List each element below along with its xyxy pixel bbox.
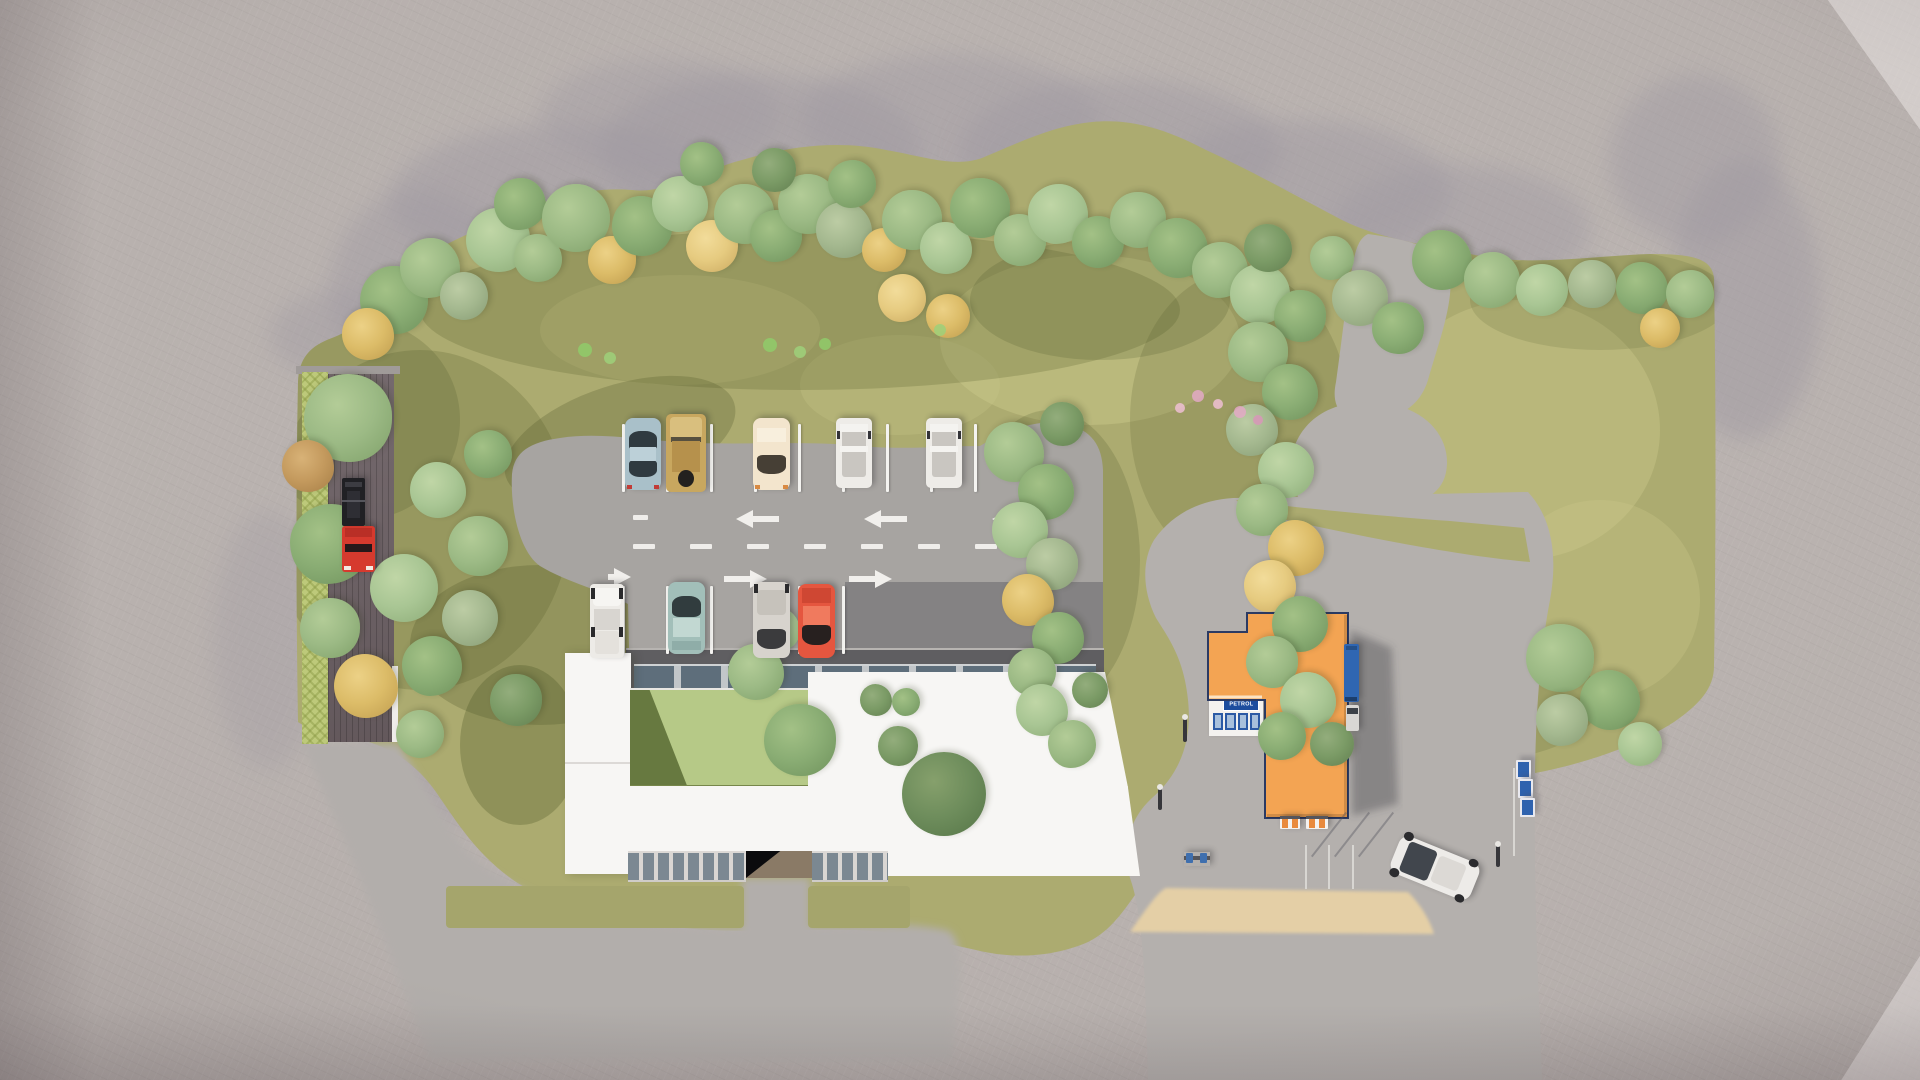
parking-stall-post bbox=[710, 424, 713, 492]
lamp-head bbox=[1182, 714, 1188, 720]
car-white-pickup-b-part bbox=[927, 431, 930, 439]
truck-red-service-part bbox=[345, 544, 373, 551]
tree-g1 bbox=[514, 234, 562, 282]
tree-sage bbox=[442, 590, 498, 646]
car-bluegray-sedan-part bbox=[654, 485, 659, 489]
service-building-green-roof bbox=[302, 372, 328, 744]
site-plan-canvas: PETROL bbox=[0, 0, 1920, 1080]
tree-g4 bbox=[752, 148, 796, 192]
tree-g2 bbox=[612, 196, 672, 256]
tree-g1 bbox=[1048, 720, 1096, 768]
lane-dash bbox=[918, 544, 940, 549]
fuel-pump-1-part bbox=[1292, 819, 1298, 827]
tree-cast-shadow bbox=[960, 80, 1280, 220]
grass-tone bbox=[960, 410, 1140, 710]
tree-cast-shadow bbox=[1610, 75, 1780, 245]
museum-green-roof bbox=[630, 688, 808, 790]
petrol-sign-label: PETROL bbox=[1229, 702, 1253, 707]
lamppost bbox=[1496, 845, 1500, 867]
green-roof-shadow bbox=[630, 690, 808, 790]
car-bluegray-sedan-part bbox=[630, 447, 656, 461]
tree-g4 bbox=[878, 726, 918, 766]
kiosk-window bbox=[1213, 713, 1223, 730]
car-teal-sedan-part bbox=[673, 618, 700, 637]
van-white-part bbox=[1399, 841, 1438, 882]
arrow-shaft bbox=[1009, 516, 1035, 522]
car-tan-jeep-part bbox=[670, 417, 702, 439]
car-red-sedan-part bbox=[802, 625, 830, 644]
arrow-shaft bbox=[724, 576, 750, 582]
truck-blue-cab bbox=[1346, 705, 1359, 731]
service-strip-dark bbox=[626, 648, 1104, 688]
parking-stall-post bbox=[974, 424, 977, 492]
fuel-pump-2-part bbox=[1309, 819, 1316, 827]
lane-dash bbox=[804, 544, 826, 549]
tree-cast-shadow bbox=[1670, 160, 1820, 440]
fuel-pump-1 bbox=[1280, 816, 1300, 829]
tree-g1 bbox=[714, 184, 774, 244]
tree-cast-shadow bbox=[390, 125, 730, 275]
service-building bbox=[296, 366, 400, 744]
tree-g3 bbox=[992, 502, 1048, 558]
service-strip-line-top bbox=[626, 648, 1104, 650]
tree-cast-shadow bbox=[1330, 165, 1590, 295]
museum-entrance bbox=[746, 851, 812, 878]
tree-cast-shadow bbox=[600, 75, 920, 225]
tree-g2 bbox=[1372, 302, 1424, 354]
car-red-sedan-part bbox=[802, 588, 832, 603]
lane-dash bbox=[633, 515, 648, 520]
pole-shadow bbox=[1311, 812, 1347, 857]
shrub-dot bbox=[1213, 399, 1223, 409]
tree-sage bbox=[1226, 404, 1278, 456]
grass-tone bbox=[420, 230, 1180, 390]
parking-stall-post bbox=[798, 424, 801, 492]
tree-g2 bbox=[950, 178, 1010, 238]
parking-stall-post bbox=[754, 586, 757, 654]
fuel-pump-2 bbox=[1306, 816, 1328, 829]
kiosk-window bbox=[1250, 713, 1260, 730]
shrub-dot bbox=[794, 346, 806, 358]
car-white-pickup-b-part bbox=[930, 446, 957, 452]
parking-stall-post bbox=[666, 586, 669, 654]
tree-g1 bbox=[1246, 636, 1298, 688]
car-white-pickup-a-part bbox=[840, 424, 869, 432]
tree-cast-shadow bbox=[213, 510, 323, 770]
truck-red-service-part bbox=[345, 528, 373, 537]
lane-dash bbox=[690, 544, 712, 549]
tree-g4 bbox=[1072, 672, 1108, 708]
tree-g2 bbox=[1274, 290, 1326, 342]
parking-stall-post bbox=[930, 424, 933, 492]
car-teal-sedan-part bbox=[672, 596, 702, 616]
lane-dash bbox=[861, 544, 883, 549]
museum-east-roof bbox=[808, 672, 1138, 788]
parking-stall-post bbox=[622, 586, 625, 654]
tree-g2 bbox=[402, 636, 462, 696]
tree-sage bbox=[1332, 270, 1388, 326]
kiosk-window bbox=[1238, 713, 1248, 730]
board-corner-cut-bottomright bbox=[0, 0, 1920, 1080]
car-white-pickup-a bbox=[836, 418, 872, 488]
museum-lawn-strip-west bbox=[446, 886, 744, 928]
vehicle-dark-service-part bbox=[342, 500, 365, 502]
shrub-dot bbox=[819, 338, 831, 350]
arrow-shaft bbox=[849, 576, 875, 582]
tree-g3 bbox=[1618, 722, 1662, 766]
lamppost bbox=[1158, 788, 1162, 810]
tree-g3 bbox=[920, 222, 972, 274]
museum-tower-wing bbox=[565, 653, 631, 874]
tree-g3 bbox=[1516, 264, 1568, 316]
petrol-plaza bbox=[1127, 492, 1554, 1080]
tree-g4 bbox=[860, 684, 892, 716]
car-bluegray-sedan-part bbox=[629, 460, 656, 477]
vehicle-dark-service-part bbox=[345, 482, 361, 487]
shrub-dot bbox=[578, 343, 592, 357]
car-cream-sedan-part bbox=[757, 428, 785, 442]
car-bluegray-sedan bbox=[625, 418, 661, 490]
tree-g1 bbox=[304, 374, 392, 462]
grass-tone bbox=[970, 240, 1230, 360]
paper-texture bbox=[0, 0, 1920, 1080]
parking-stall-post bbox=[886, 424, 889, 492]
tree-g4 bbox=[1310, 722, 1354, 766]
vehicle-dark-service-part bbox=[347, 491, 361, 517]
tree-g1 bbox=[1310, 236, 1354, 280]
tree-y1 bbox=[334, 654, 398, 718]
arrow-head-icon bbox=[875, 570, 892, 588]
tree-y1 bbox=[1640, 308, 1680, 348]
tree-g1 bbox=[1464, 252, 1520, 308]
canopy-shadow bbox=[1350, 630, 1398, 816]
tree-y2 bbox=[1244, 560, 1296, 612]
tree-g2 bbox=[1258, 712, 1306, 760]
car-white-truck-part bbox=[591, 627, 594, 637]
tree-y2 bbox=[878, 274, 926, 322]
car-teal-sedan-part bbox=[672, 641, 700, 650]
truck-blue-trailer-part bbox=[1346, 646, 1357, 650]
cast-shadows-layer bbox=[0, 0, 1920, 1080]
tree-g1 bbox=[400, 238, 460, 298]
museum-south-body bbox=[630, 786, 1140, 876]
tree-g2 bbox=[290, 504, 370, 584]
picnic-bench-part bbox=[1200, 853, 1207, 863]
car-white-truck-part bbox=[591, 588, 594, 598]
path-loop-blob bbox=[1290, 402, 1447, 507]
truck-red-service-part bbox=[344, 566, 351, 570]
truck-blue-trailer bbox=[1344, 644, 1359, 702]
grass-tone bbox=[270, 350, 570, 690]
tree-g1 bbox=[882, 190, 942, 250]
service-building-white-edge bbox=[392, 666, 398, 742]
car-white-pickup-b bbox=[926, 418, 962, 488]
tree-g3 bbox=[1258, 442, 1314, 498]
museum-glazing-west bbox=[628, 851, 746, 882]
car-gray-suv bbox=[753, 582, 790, 658]
service-building-dark-roof bbox=[328, 374, 394, 742]
blue-info-sign bbox=[1518, 779, 1533, 798]
road-markings-layer bbox=[0, 0, 1920, 1080]
board-corner-cut-topright bbox=[0, 0, 1920, 1080]
car-cream-sedan-part bbox=[757, 455, 787, 474]
site-grass bbox=[297, 121, 1716, 955]
parking-stall-post bbox=[622, 424, 625, 492]
car-bluegray-sedan-part bbox=[627, 485, 632, 489]
tree-g1 bbox=[396, 710, 444, 758]
vehicle-dark-service bbox=[342, 478, 365, 526]
tree-g3 bbox=[410, 462, 466, 518]
museum-glazing-east bbox=[812, 851, 888, 882]
tree-cast-shadow bbox=[270, 290, 420, 380]
picnic-bench-part bbox=[1184, 856, 1210, 860]
tree-y1 bbox=[1268, 520, 1324, 576]
tree-g2 bbox=[360, 266, 428, 334]
grass-shadows bbox=[260, 230, 1730, 825]
car-white-pickup-b-part bbox=[930, 424, 959, 432]
tree-g2 bbox=[828, 160, 876, 208]
tree-y1 bbox=[588, 236, 636, 284]
car-white-truck bbox=[590, 584, 624, 658]
car-gray-suv-part bbox=[757, 629, 787, 649]
truck-blue-cab-part bbox=[1347, 708, 1357, 714]
tree-g2 bbox=[1262, 364, 1318, 420]
car-tan-jeep-part bbox=[671, 437, 701, 442]
service-building-cap bbox=[296, 366, 400, 374]
car-teal-sedan bbox=[668, 582, 705, 654]
tree-g1 bbox=[1236, 484, 1288, 536]
grass-tone bbox=[1130, 270, 1350, 570]
flag-pole bbox=[1305, 845, 1307, 889]
tree-sage bbox=[1568, 260, 1616, 308]
car-white-pickup-a-part bbox=[868, 431, 871, 439]
tree-cast-shadow bbox=[800, 55, 1100, 185]
car-tan-jeep-part bbox=[678, 470, 694, 487]
truck-red-service-part bbox=[366, 566, 373, 570]
grass-tone bbox=[593, 434, 866, 576]
tree-g1 bbox=[300, 598, 360, 658]
car-gray-suv-part bbox=[754, 584, 758, 593]
tree-g1 bbox=[448, 516, 508, 576]
car-gray-suv-part bbox=[757, 590, 785, 616]
pole-shadow bbox=[1358, 812, 1394, 857]
truck-red-service bbox=[342, 526, 375, 572]
car-white-truck-part bbox=[619, 627, 622, 637]
tree-g2 bbox=[1032, 612, 1084, 664]
shrub-dot bbox=[1192, 390, 1204, 402]
entrance-shadow bbox=[746, 851, 812, 878]
tree-g2 bbox=[1580, 670, 1640, 730]
tree-sage bbox=[440, 272, 488, 320]
grass-tone bbox=[1500, 500, 1700, 700]
green-roof-edge bbox=[630, 785, 808, 789]
tree-g2 bbox=[1616, 262, 1668, 314]
parking-corner-shade bbox=[845, 582, 1103, 650]
grass-wedge bbox=[1236, 500, 1530, 562]
parking-asphalt bbox=[512, 422, 1103, 688]
tree-g3 bbox=[370, 554, 438, 622]
grass-tone bbox=[260, 320, 460, 520]
trees-layer bbox=[0, 0, 1920, 1080]
grass-tone bbox=[1380, 300, 1660, 560]
blue-info-sign bbox=[1516, 760, 1531, 779]
arrow-head-icon bbox=[992, 510, 1009, 528]
car-white-pickup-b-part bbox=[932, 428, 956, 477]
car-white-truck-part bbox=[594, 609, 620, 630]
tree-y1 bbox=[1002, 574, 1054, 626]
tree-g3 bbox=[466, 208, 530, 272]
skylight-band bbox=[634, 664, 1096, 690]
lane-arrow-right bbox=[849, 570, 892, 588]
tree-g2 bbox=[750, 210, 802, 262]
car-white-pickup-b-part bbox=[958, 431, 961, 439]
tree-cast-shadow bbox=[360, 705, 580, 825]
tree-g4 bbox=[1040, 402, 1084, 446]
car-red-sedan-part bbox=[803, 606, 830, 625]
canopy-svg bbox=[0, 0, 1920, 1080]
van-white-part bbox=[1388, 867, 1401, 879]
car-white-pickup-a-part bbox=[840, 446, 867, 452]
tree-g2 bbox=[892, 688, 920, 716]
lane-dash bbox=[975, 544, 997, 549]
grass-tone bbox=[1470, 250, 1730, 350]
tree-tan bbox=[282, 440, 334, 492]
tree-g2 bbox=[680, 142, 724, 186]
parking-stall-post bbox=[754, 424, 757, 492]
grass-highlights bbox=[540, 255, 1700, 700]
flag-pole bbox=[1352, 845, 1354, 889]
arrow-shaft bbox=[881, 516, 907, 522]
flag-pole bbox=[1328, 845, 1330, 889]
tree-g1 bbox=[1192, 242, 1248, 298]
tree-g2 bbox=[1148, 218, 1208, 278]
lane-arrow-right bbox=[724, 570, 767, 588]
car-white-pickup-a-part bbox=[837, 431, 840, 439]
parking-stall-post bbox=[798, 586, 801, 654]
parking-stall-post bbox=[842, 586, 845, 654]
tree-g4 bbox=[490, 674, 542, 726]
fuel-pump-1-part bbox=[1282, 819, 1288, 827]
car-cream-sedan bbox=[753, 418, 790, 490]
tree-g1 bbox=[1110, 192, 1166, 248]
tree-sage bbox=[816, 202, 872, 258]
tree-g3 bbox=[1280, 672, 1336, 728]
lane-dash bbox=[1032, 544, 1054, 549]
tree-g2 bbox=[1072, 216, 1124, 268]
tree-y1 bbox=[926, 294, 970, 338]
grass-tone bbox=[800, 650, 1060, 790]
car-cream-sedan-part bbox=[783, 485, 788, 489]
tree-g1 bbox=[778, 174, 838, 234]
tree-g2 bbox=[1018, 464, 1074, 520]
arrow-head-icon bbox=[864, 510, 881, 528]
grass-tone bbox=[800, 335, 1000, 435]
fuel-pump-2-part bbox=[1319, 819, 1326, 827]
tree-pine bbox=[902, 752, 986, 836]
shrub-dot bbox=[763, 338, 777, 352]
tree-cast-shadow bbox=[1150, 120, 1450, 260]
tree-g2 bbox=[494, 178, 546, 230]
flag-pole bbox=[1513, 768, 1515, 856]
tree-g1 bbox=[1526, 624, 1594, 692]
lamppost bbox=[1183, 718, 1187, 742]
car-tan-jeep bbox=[666, 414, 706, 492]
car-white-pickup-a-part bbox=[842, 428, 866, 477]
van-white-part bbox=[1453, 893, 1465, 904]
car-white-truck-part bbox=[595, 631, 619, 653]
fuel-pump-1-part bbox=[1280, 816, 1300, 819]
tree-y2 bbox=[686, 220, 738, 272]
lane-arrow-left bbox=[736, 510, 779, 528]
tree-g1 bbox=[1008, 648, 1056, 696]
tree-g3 bbox=[1230, 264, 1290, 324]
tree-g3 bbox=[1028, 184, 1088, 244]
parking-stall-post bbox=[666, 424, 669, 492]
canopy-inner-shade bbox=[1267, 615, 1346, 816]
grass-tone bbox=[489, 351, 751, 530]
car-white-truck-part bbox=[593, 588, 620, 606]
grass-tone bbox=[1360, 640, 1600, 760]
car-tan-jeep-part bbox=[672, 441, 701, 472]
tree-g2 bbox=[1272, 596, 1328, 652]
tree-y1 bbox=[862, 228, 906, 272]
tree-sage bbox=[1536, 694, 1588, 746]
shrub-dot bbox=[1253, 415, 1263, 425]
tree-sage bbox=[1026, 538, 1078, 590]
shrub-dot bbox=[1175, 403, 1185, 413]
vignette bbox=[0, 0, 1920, 1080]
picnic-bench-part bbox=[1186, 853, 1193, 863]
buildings-layer: PETROL bbox=[0, 0, 1920, 1080]
petrol-sign: PETROL bbox=[1223, 698, 1259, 711]
shrub-dot bbox=[1234, 406, 1246, 418]
grass-tone bbox=[460, 665, 580, 825]
parking-stall-post bbox=[710, 586, 713, 654]
lane-arrow-right bbox=[608, 568, 631, 586]
lamp-head bbox=[1157, 784, 1163, 790]
tree-g4 bbox=[1244, 224, 1292, 272]
tree-g1 bbox=[1666, 270, 1714, 318]
tree-g1 bbox=[728, 644, 784, 700]
lane-arrow-left bbox=[864, 510, 907, 528]
car-cream-sedan-part bbox=[755, 485, 760, 489]
lamp-head bbox=[1495, 841, 1501, 847]
grass-tone bbox=[410, 565, 670, 725]
tree-g3 bbox=[1016, 684, 1068, 736]
tree-cast-shadow bbox=[540, 60, 780, 170]
arrow-shaft bbox=[753, 516, 779, 522]
path-north-entry bbox=[1335, 234, 1451, 420]
car-red-sedan bbox=[798, 584, 835, 658]
tree-g2 bbox=[764, 704, 836, 776]
arrow-head-icon bbox=[736, 510, 753, 528]
grass-tone bbox=[940, 255, 1240, 425]
van-white bbox=[1388, 833, 1483, 902]
lane-dash bbox=[633, 544, 655, 549]
arrow-head-icon bbox=[614, 568, 631, 586]
lane-arrow-left bbox=[992, 510, 1035, 528]
van-white-part bbox=[1468, 857, 1480, 868]
tree-y1 bbox=[342, 308, 394, 360]
kiosk-body bbox=[1209, 698, 1263, 736]
groundplane-svg bbox=[0, 0, 1920, 1080]
shrub-dot bbox=[604, 352, 616, 364]
blue-info-sign bbox=[1520, 798, 1535, 817]
tree-cast-shadow bbox=[330, 190, 510, 390]
petrol-canopy bbox=[1208, 613, 1348, 818]
tree-g3 bbox=[756, 608, 800, 652]
fuel-pump-2-part bbox=[1306, 816, 1328, 819]
